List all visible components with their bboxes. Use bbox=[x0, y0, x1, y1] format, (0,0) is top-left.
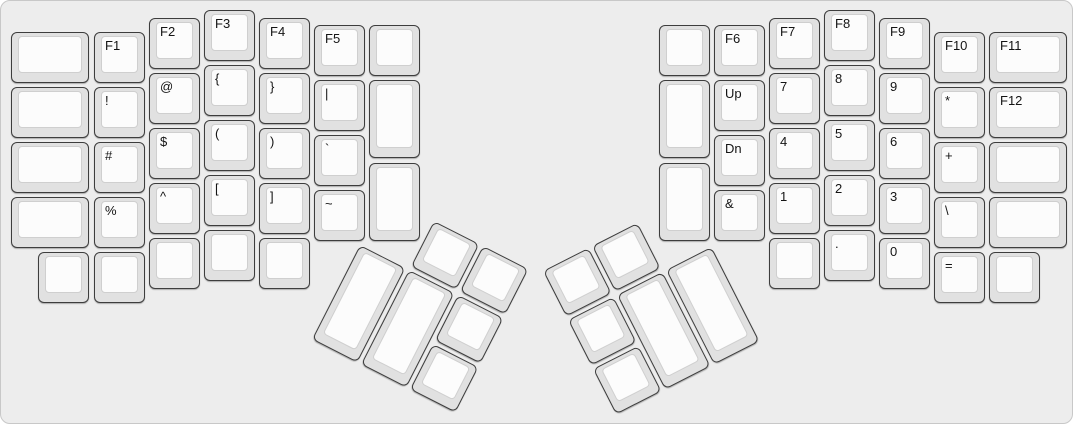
key-equals[interactable]: = bbox=[934, 252, 985, 303]
key-4[interactable]: 4 bbox=[769, 128, 820, 179]
key-dn[interactable]: Dn bbox=[714, 135, 765, 186]
keycap-top bbox=[666, 167, 703, 231]
keycap-top: | bbox=[321, 84, 358, 121]
key-backtick[interactable]: ` bbox=[314, 135, 365, 186]
keycap-top: F12 bbox=[996, 91, 1060, 128]
key-0[interactable]: 0 bbox=[879, 238, 930, 289]
key-blank[interactable] bbox=[369, 80, 420, 158]
key-open-bracket[interactable]: [ bbox=[204, 175, 255, 226]
key-tilde[interactable]: ~ bbox=[314, 190, 365, 241]
key-label: F10 bbox=[945, 38, 967, 54]
key-label: Up bbox=[725, 86, 742, 102]
key-label: 3 bbox=[890, 189, 897, 205]
key-label: & bbox=[725, 196, 734, 212]
key-label: F7 bbox=[780, 24, 795, 40]
key-label: ^ bbox=[160, 189, 166, 205]
key-f8[interactable]: F8 bbox=[824, 10, 875, 61]
key-f5[interactable]: F5 bbox=[314, 25, 365, 76]
keycap-top: F7 bbox=[776, 22, 813, 59]
keycap-top: F1 bbox=[101, 36, 138, 73]
key-blank[interactable] bbox=[989, 252, 1040, 303]
keyboard-canvas: F1!#%F2@$^F3{([F4})]F5|`~ F6UpDn&F7741F8… bbox=[0, 0, 1073, 424]
key-f11[interactable]: F11 bbox=[989, 32, 1067, 83]
key-label: F11 bbox=[1000, 38, 1021, 54]
keycap-top bbox=[45, 256, 82, 293]
key-label: F5 bbox=[325, 31, 340, 47]
keycap-top: F10 bbox=[941, 36, 978, 73]
key-label: F3 bbox=[215, 16, 230, 32]
key-open-brace[interactable]: { bbox=[204, 65, 255, 116]
keycap-top: & bbox=[721, 194, 758, 231]
keycap-top: 7 bbox=[776, 77, 813, 114]
keycap-top: F2 bbox=[156, 22, 193, 59]
keycap-top: 3 bbox=[886, 187, 923, 224]
keycap-top: 8 bbox=[831, 69, 868, 106]
keycap-top: ) bbox=[266, 132, 303, 169]
key-label: ! bbox=[105, 93, 109, 109]
keycap-top bbox=[422, 228, 472, 278]
keycap-top bbox=[601, 353, 651, 403]
key-label: * bbox=[945, 93, 950, 109]
keycap-top bbox=[551, 255, 601, 305]
key-caret[interactable]: ^ bbox=[149, 183, 200, 234]
key-blank[interactable] bbox=[769, 238, 820, 289]
key-2[interactable]: 2 bbox=[824, 175, 875, 226]
key-blank[interactable] bbox=[11, 142, 89, 193]
key-label: F9 bbox=[890, 24, 905, 40]
key-blank[interactable] bbox=[204, 230, 255, 281]
key-label: % bbox=[105, 203, 117, 219]
key-blank[interactable] bbox=[659, 163, 710, 241]
keycap-top: ! bbox=[101, 91, 138, 128]
key-blank[interactable] bbox=[11, 32, 89, 83]
key-blank[interactable] bbox=[11, 87, 89, 138]
key-label: 9 bbox=[890, 79, 897, 95]
key-3[interactable]: 3 bbox=[879, 183, 930, 234]
key-label: | bbox=[325, 86, 328, 102]
keycap-top: ] bbox=[266, 187, 303, 224]
key-plus[interactable]: + bbox=[934, 142, 985, 193]
keycap-top: 2 bbox=[831, 179, 868, 216]
key-9[interactable]: 9 bbox=[879, 73, 930, 124]
key-label: 6 bbox=[890, 134, 897, 150]
key-blank[interactable] bbox=[259, 238, 310, 289]
key-open-paren[interactable]: ( bbox=[204, 120, 255, 171]
keycap-top bbox=[376, 84, 413, 148]
key-blank[interactable] bbox=[659, 25, 710, 76]
keycap-top: ` bbox=[321, 139, 358, 176]
key-label: 5 bbox=[835, 126, 842, 142]
key-label: 7 bbox=[780, 79, 787, 95]
key-asterisk[interactable]: * bbox=[934, 87, 985, 138]
keycap-top: 1 bbox=[776, 187, 813, 224]
keycap-top: # bbox=[101, 146, 138, 183]
keycap-top: @ bbox=[156, 77, 193, 114]
keycap-top bbox=[376, 167, 413, 231]
key-blank[interactable] bbox=[989, 197, 1067, 248]
key-label: ] bbox=[270, 189, 274, 205]
key-label: $ bbox=[160, 134, 167, 150]
key-blank[interactable] bbox=[149, 238, 200, 289]
keycap-top: \ bbox=[941, 201, 978, 238]
key-label: F12 bbox=[1000, 93, 1022, 109]
keycap-top bbox=[996, 146, 1060, 183]
keycap-top: 0 bbox=[886, 242, 923, 279]
key-blank[interactable] bbox=[38, 252, 89, 303]
key-blank[interactable] bbox=[369, 25, 420, 76]
keycap-top: 5 bbox=[831, 124, 868, 161]
key-label: } bbox=[270, 79, 274, 95]
keycap-top bbox=[600, 230, 650, 280]
keycap-top bbox=[18, 36, 82, 73]
keycap-top: 9 bbox=[886, 77, 923, 114]
key-blank[interactable] bbox=[369, 163, 420, 241]
keycap-top: % bbox=[101, 201, 138, 238]
key-close-bracket[interactable]: ] bbox=[259, 183, 310, 234]
keycap-top bbox=[266, 242, 303, 279]
key-label: F1 bbox=[105, 38, 120, 54]
keycap-top: ~ bbox=[321, 194, 358, 231]
key-blank[interactable] bbox=[11, 197, 89, 248]
key-f9[interactable]: F9 bbox=[879, 18, 930, 69]
key-label: 2 bbox=[835, 181, 842, 197]
keycap-top: Up bbox=[721, 84, 758, 121]
key-dollar[interactable]: $ bbox=[149, 128, 200, 179]
keycap-top bbox=[18, 146, 82, 183]
key-f6[interactable]: F6 bbox=[714, 25, 765, 76]
keycap-top: F8 bbox=[831, 14, 868, 51]
key-f3[interactable]: F3 bbox=[204, 10, 255, 61]
key-label: [ bbox=[215, 181, 219, 197]
key-hash[interactable]: # bbox=[94, 142, 145, 193]
key-pipe[interactable]: | bbox=[314, 80, 365, 131]
keycap-top bbox=[18, 201, 82, 238]
key-label: + bbox=[945, 148, 953, 164]
keycap-top bbox=[446, 302, 496, 352]
key-blank[interactable] bbox=[94, 252, 145, 303]
keycap-top bbox=[776, 242, 813, 279]
key-blank[interactable] bbox=[989, 142, 1067, 193]
key-label: 0 bbox=[890, 244, 897, 260]
key-blank[interactable] bbox=[659, 80, 710, 158]
keycap-top: ^ bbox=[156, 187, 193, 224]
keycap-top: Dn bbox=[721, 139, 758, 176]
key-backslash[interactable]: \ bbox=[934, 197, 985, 248]
key-label: @ bbox=[160, 79, 173, 95]
key-f4[interactable]: F4 bbox=[259, 18, 310, 69]
keycap-top: F11 bbox=[996, 36, 1060, 73]
key-f7[interactable]: F7 bbox=[769, 18, 820, 69]
key-label: # bbox=[105, 148, 112, 164]
keycap-top: + bbox=[941, 146, 978, 183]
key-up[interactable]: Up bbox=[714, 80, 765, 131]
key-label: 4 bbox=[780, 134, 787, 150]
key-label: Dn bbox=[725, 141, 742, 157]
keycap-top bbox=[211, 234, 248, 271]
key-label: 1 bbox=[780, 189, 787, 205]
key-label: F6 bbox=[725, 31, 740, 47]
key-f10[interactable]: F10 bbox=[934, 32, 985, 83]
keycap-top bbox=[666, 84, 703, 148]
key-f2[interactable]: F2 bbox=[149, 18, 200, 69]
key-period[interactable]: . bbox=[824, 230, 875, 281]
key-label: ) bbox=[270, 134, 274, 150]
keycap-top: F3 bbox=[211, 14, 248, 51]
keycap-top bbox=[666, 29, 703, 66]
keycap-top: $ bbox=[156, 132, 193, 169]
keycap-top: [ bbox=[211, 179, 248, 216]
keycap-top: 6 bbox=[886, 132, 923, 169]
keycap-top: = bbox=[941, 256, 978, 293]
keycap-top: . bbox=[831, 234, 868, 271]
key-f1[interactable]: F1 bbox=[94, 32, 145, 83]
keycap-top: F9 bbox=[886, 22, 923, 59]
keycap-top: { bbox=[211, 69, 248, 106]
keycap-top: * bbox=[941, 91, 978, 128]
keycap-top bbox=[156, 242, 193, 279]
key-8[interactable]: 8 bbox=[824, 65, 875, 116]
keycap-top: F5 bbox=[321, 29, 358, 66]
keycap-top: F4 bbox=[266, 22, 303, 59]
key-ampersand[interactable]: & bbox=[714, 190, 765, 241]
key-label: ` bbox=[325, 141, 329, 157]
key-percent[interactable]: % bbox=[94, 197, 145, 248]
key-at[interactable]: @ bbox=[149, 73, 200, 124]
key-label: ( bbox=[215, 126, 219, 142]
key-label: F4 bbox=[270, 24, 285, 40]
keycap-top bbox=[996, 201, 1060, 238]
keycap-top bbox=[376, 29, 413, 66]
key-label: F8 bbox=[835, 16, 850, 32]
keycap-top bbox=[471, 253, 521, 303]
key-label: 8 bbox=[835, 71, 842, 87]
key-f12[interactable]: F12 bbox=[989, 87, 1067, 138]
key-7[interactable]: 7 bbox=[769, 73, 820, 124]
keycap-top bbox=[101, 256, 138, 293]
key-label: . bbox=[835, 236, 839, 252]
keycap-top bbox=[576, 304, 626, 354]
keycap-top: ( bbox=[211, 124, 248, 161]
key-5[interactable]: 5 bbox=[824, 120, 875, 171]
keycap-top: } bbox=[266, 77, 303, 114]
keycap-top: 4 bbox=[776, 132, 813, 169]
key-label: \ bbox=[945, 203, 949, 219]
key-label: ~ bbox=[325, 196, 333, 212]
key-exclam[interactable]: ! bbox=[94, 87, 145, 138]
key-label: F2 bbox=[160, 24, 175, 40]
key-close-paren[interactable]: ) bbox=[259, 128, 310, 179]
key-close-brace[interactable]: } bbox=[259, 73, 310, 124]
key-label: = bbox=[945, 258, 953, 274]
key-1[interactable]: 1 bbox=[769, 183, 820, 234]
keycap-top bbox=[996, 256, 1033, 293]
keycap-top bbox=[18, 91, 82, 128]
keycap-top: F6 bbox=[721, 29, 758, 66]
key-6[interactable]: 6 bbox=[879, 128, 930, 179]
key-label: { bbox=[215, 71, 219, 87]
keycap-top bbox=[421, 351, 471, 401]
